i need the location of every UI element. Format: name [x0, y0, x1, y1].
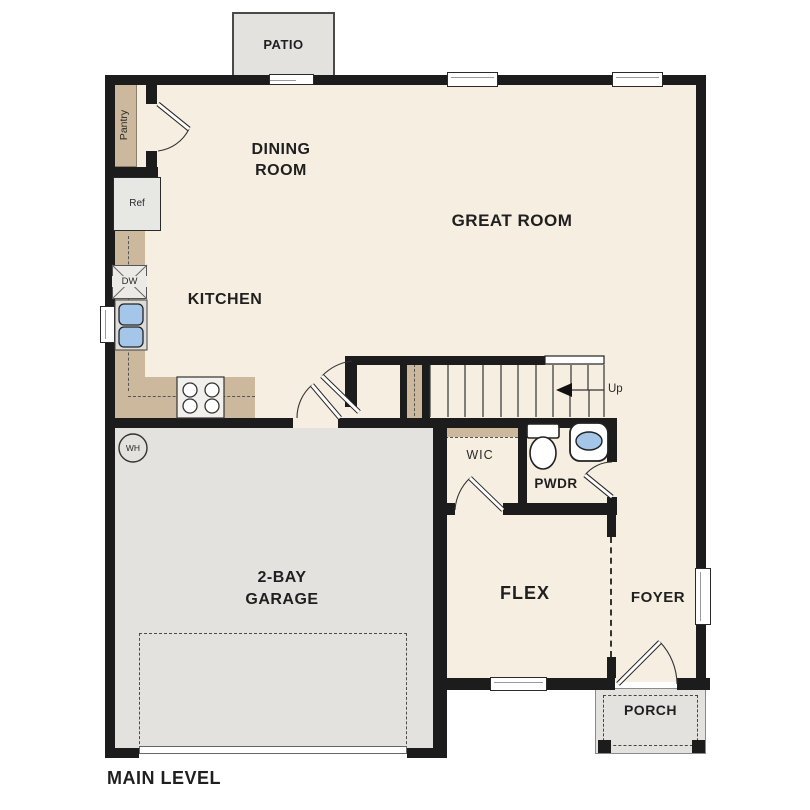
- water-heater-label: WH: [119, 443, 147, 453]
- up-label: Up: [608, 383, 623, 395]
- porch-label: PORCH: [595, 702, 706, 718]
- dining-room-label: DINING ROOM: [211, 140, 351, 182]
- pantry-label: Pantry: [118, 85, 130, 165]
- powder-sink: [570, 423, 608, 461]
- kitchen-label: KITCHEN: [155, 291, 295, 309]
- wic-door-arc: [455, 478, 470, 510]
- stove: [177, 377, 224, 418]
- stair-railing: [545, 356, 604, 364]
- great-room-label: GREAT ROOM: [412, 211, 612, 231]
- floor-plan: PATIO DINING ROOM GREAT ROOM KITCHEN 2-B…: [0, 0, 810, 810]
- kitchen-sink: [115, 300, 147, 350]
- wic-label: WIC: [450, 448, 510, 462]
- garage-label-line2: GARAGE: [202, 589, 362, 611]
- powder-door-arc: [585, 462, 612, 475]
- hall-door-arc: [322, 361, 352, 376]
- pantry-door-arc: [158, 129, 189, 151]
- dining-room-label-line1: DINING: [211, 140, 351, 161]
- stairs-up-arrow: [556, 383, 572, 397]
- foyer-label: FOYER: [618, 589, 698, 606]
- garage-label-line1: 2-BAY: [202, 567, 362, 589]
- powder-label: PWDR: [527, 476, 585, 491]
- garage-label: 2-BAY GARAGE: [202, 567, 362, 610]
- dining-room-label-line2: ROOM: [211, 161, 351, 182]
- front-door-arc: [660, 642, 677, 684]
- garage-entry-door-arc: [297, 385, 312, 418]
- dishwasher-label: DW: [112, 276, 147, 287]
- toilet: [527, 424, 559, 469]
- refrigerator-label: Ref: [113, 198, 161, 209]
- staircase: [430, 365, 604, 417]
- flex-label: FLEX: [455, 583, 595, 604]
- patio-label: PATIO: [232, 37, 335, 52]
- main-level-label: MAIN LEVEL: [107, 768, 221, 789]
